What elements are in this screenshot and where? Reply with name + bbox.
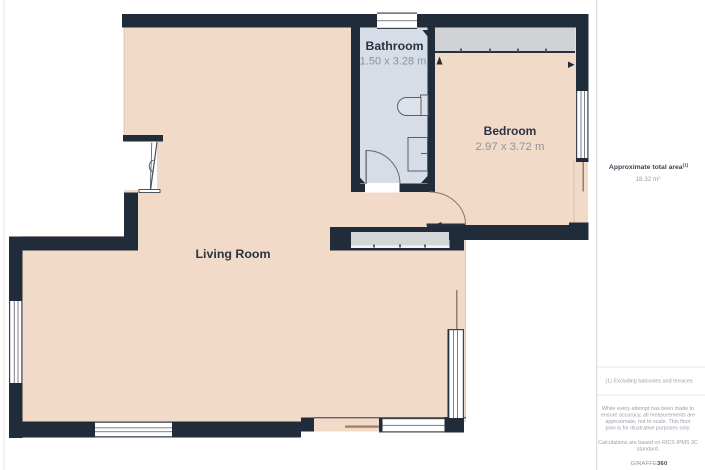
svg-text:plan is for illustrative purpo: plan is for illustrative purposes only. [606, 426, 691, 432]
svg-text:Living Room: Living Room [195, 247, 270, 261]
svg-text:2.97 x 3.72 m: 2.97 x 3.72 m [475, 141, 544, 153]
svg-text:While every attempt has been m: While every attempt has been made to [602, 406, 694, 412]
svg-text:18.32 m2: 18.32 m2 [636, 175, 662, 183]
svg-text:1.50 x 3.28 m: 1.50 x 3.28 m [360, 56, 427, 68]
svg-text:Approximate total area(1): Approximate total area(1) [609, 163, 689, 172]
svg-text:(1) Excluding balconies and te: (1) Excluding balconies and terraces [605, 379, 692, 385]
svg-text:Calculations are based on RICS: Calculations are based on RICS IPMS 3C [598, 440, 698, 446]
svg-text:Bathroom: Bathroom [365, 39, 423, 53]
svg-text:approximate, not to scale. Thi: approximate, not to scale. This floor [605, 419, 690, 425]
svg-text:standard.: standard. [637, 447, 659, 453]
svg-text:Bedroom: Bedroom [484, 124, 537, 138]
svg-text:GIRAFFE360: GIRAFFE360 [631, 461, 668, 467]
svg-text:ensure accuracy, all measureme: ensure accuracy, all measurements are [601, 413, 695, 419]
